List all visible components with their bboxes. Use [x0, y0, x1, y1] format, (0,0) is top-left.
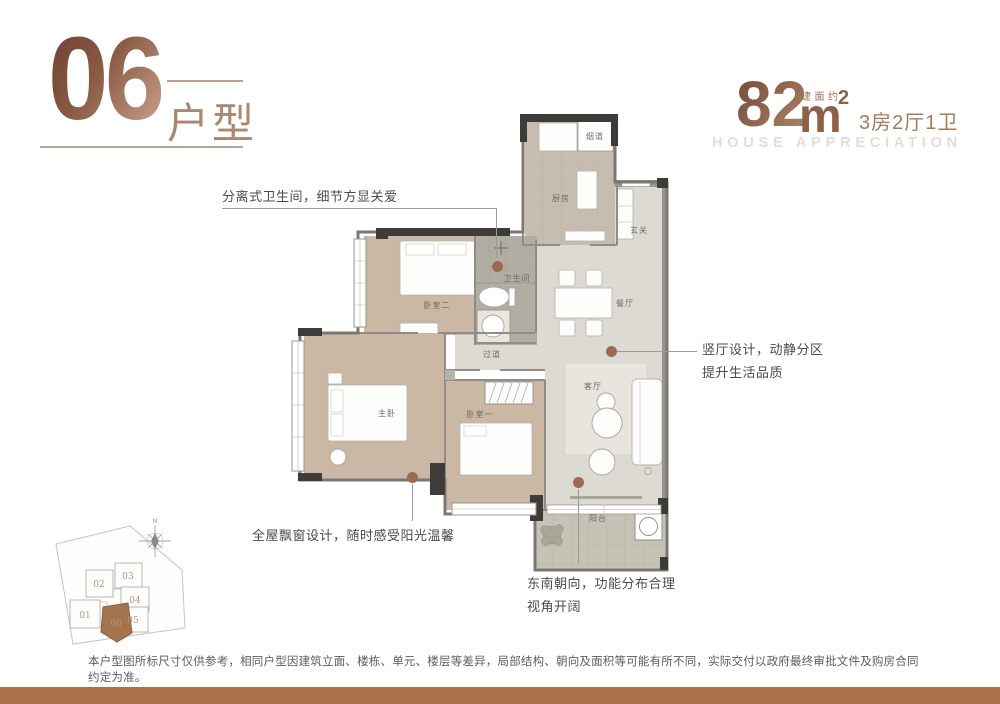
bedroom2-label: 卧室二 — [424, 300, 451, 310]
area-prefix-label: 建面约 — [801, 88, 842, 103]
building-02-label: 02 — [93, 580, 104, 590]
disclaimer-text: 本户型图所标尺寸仅供参考，相同户型因建筑立面、楼栋、单元、楼层等差异，局部结构、… — [88, 653, 928, 685]
area-value: 82 — [736, 72, 807, 136]
dining-label: 餐厅 — [616, 299, 634, 308]
note-separate-bathroom-line-h — [222, 208, 496, 209]
floorplan-page: 06 户型 82 m 建面约 2 3房2厅1卫 HOUSE APPRECIATI… — [0, 0, 1000, 704]
note-vertical-hall-line1: 竖厅设计，动静分区 — [702, 338, 824, 361]
note-orientation-line — [578, 489, 579, 563]
area-exponent: 2 — [838, 87, 849, 110]
building-06-label: 06 — [110, 619, 122, 629]
room-kitchen: 烟道 厨房 — [525, 118, 615, 245]
note-bay-windows-line — [412, 484, 413, 521]
note-vertical-hall: 竖厅设计，动静分区 提升生活品质 — [702, 338, 824, 384]
note-separate-bathroom: 分离式卫生间，细节方显关爱 — [222, 185, 398, 208]
building-03-label: 03 — [122, 572, 134, 582]
note-separate-bathroom-line-v — [496, 208, 497, 258]
flue-label: 烟道 — [586, 131, 604, 141]
bottom-accent-bar — [0, 687, 1000, 704]
note-orientation-dot — [573, 477, 584, 488]
note-orientation: 东南朝向，功能分布合理 视角开阔 — [527, 572, 676, 618]
tagline-english: HOUSE APPRECIATION — [712, 135, 962, 151]
plant — [541, 525, 564, 546]
room-summary: 3房2厅1卫 — [859, 106, 958, 135]
building-05-label: 05 — [127, 616, 139, 626]
note-vertical-hall-dot — [606, 346, 617, 357]
kitchen-label: 厨房 — [552, 193, 570, 203]
building-04-label: 04 — [129, 596, 141, 606]
balcony-label: 阳台 — [589, 513, 607, 523]
title-divider-top — [167, 80, 243, 82]
floor-plan: 烟道 厨房 玄关 卫生间 — [280, 105, 690, 580]
corridor-label: 过道 — [483, 349, 501, 359]
title-divider-bottom — [40, 146, 243, 148]
living-label: 客厅 — [584, 381, 602, 391]
room-bedroom1: 卧室一 — [445, 380, 545, 510]
note-vertical-hall-line — [617, 351, 697, 352]
note-orientation-line2: 视角开阔 — [527, 595, 676, 618]
note-bay-windows-dot — [407, 472, 418, 483]
room-bedroom2: 卧室二 — [364, 236, 475, 335]
bathroom-label: 卫生间 — [504, 273, 531, 283]
unit-number: 06 — [48, 20, 161, 138]
note-vertical-hall-line2: 提升生活品质 — [702, 361, 824, 384]
note-separate-bathroom-dot — [492, 261, 503, 272]
compass-north-label: N — [153, 519, 157, 525]
master-bedroom-label: 主卧 — [378, 408, 396, 418]
note-bay-windows: 全屋飘窗设计，随时感受阳光温馨 — [252, 524, 455, 547]
unit-type-label: 户型 — [167, 90, 257, 151]
note-orientation-line1: 东南朝向，功能分布合理 — [527, 572, 676, 595]
wall-stub — [445, 370, 455, 380]
building-01-label: 01 — [79, 611, 90, 621]
entry-label: 玄关 — [630, 225, 648, 235]
site-plan: 02 03 04 01 05 06 N — [55, 515, 215, 655]
room-master-bedroom: 主卧 — [304, 333, 445, 480]
area-balcony: 阳台 — [535, 510, 667, 570]
bedroom1-label: 卧室一 — [467, 409, 494, 419]
room-bathroom: 卫生间 — [475, 236, 537, 345]
